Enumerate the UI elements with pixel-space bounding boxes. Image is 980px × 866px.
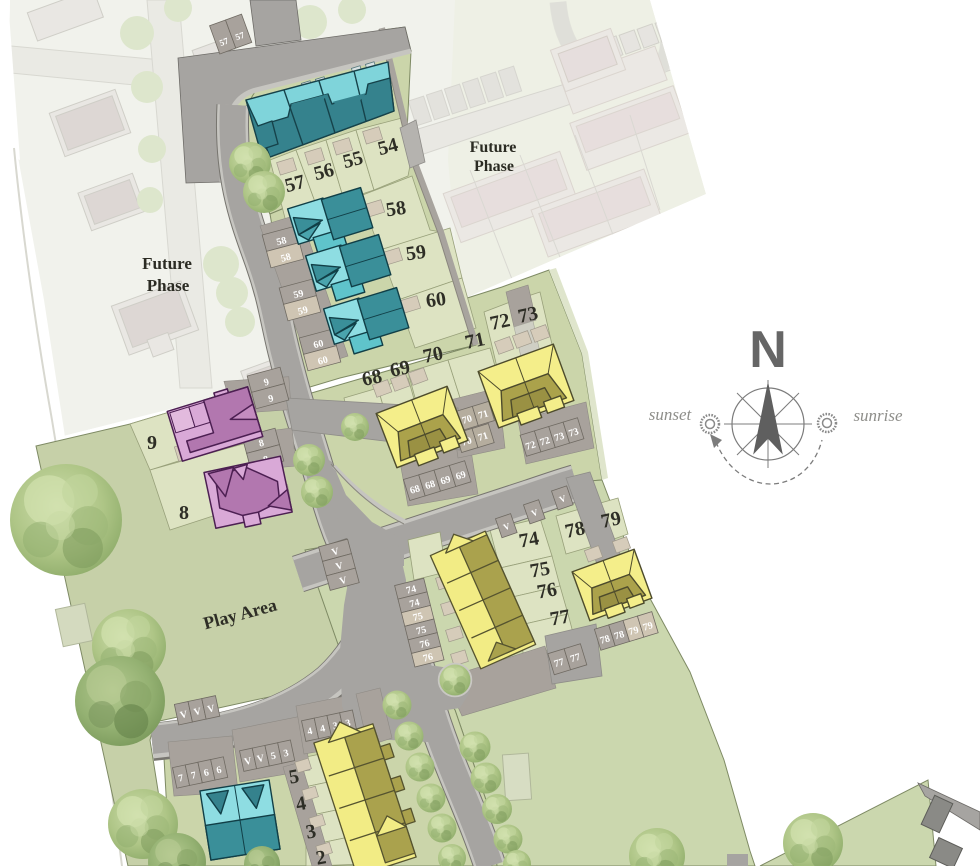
svg-text:9: 9: [147, 432, 157, 454]
svg-text:sunrise: sunrise: [853, 406, 903, 425]
svg-text:74: 74: [517, 527, 541, 552]
svg-text:sunset: sunset: [649, 405, 693, 424]
svg-text:77: 77: [548, 605, 572, 630]
svg-text:Future: Future: [470, 139, 517, 156]
svg-text:60: 60: [425, 288, 448, 313]
svg-text:Phase: Phase: [147, 276, 190, 295]
svg-text:58: 58: [385, 197, 408, 222]
svg-text:59: 59: [405, 241, 428, 266]
svg-text:N: N: [749, 321, 787, 379]
svg-text:Future: Future: [142, 254, 192, 273]
svg-text:68: 68: [360, 365, 384, 391]
svg-text:8: 8: [179, 502, 189, 524]
svg-text:Phase: Phase: [474, 158, 514, 175]
svg-text:76: 76: [535, 578, 559, 603]
